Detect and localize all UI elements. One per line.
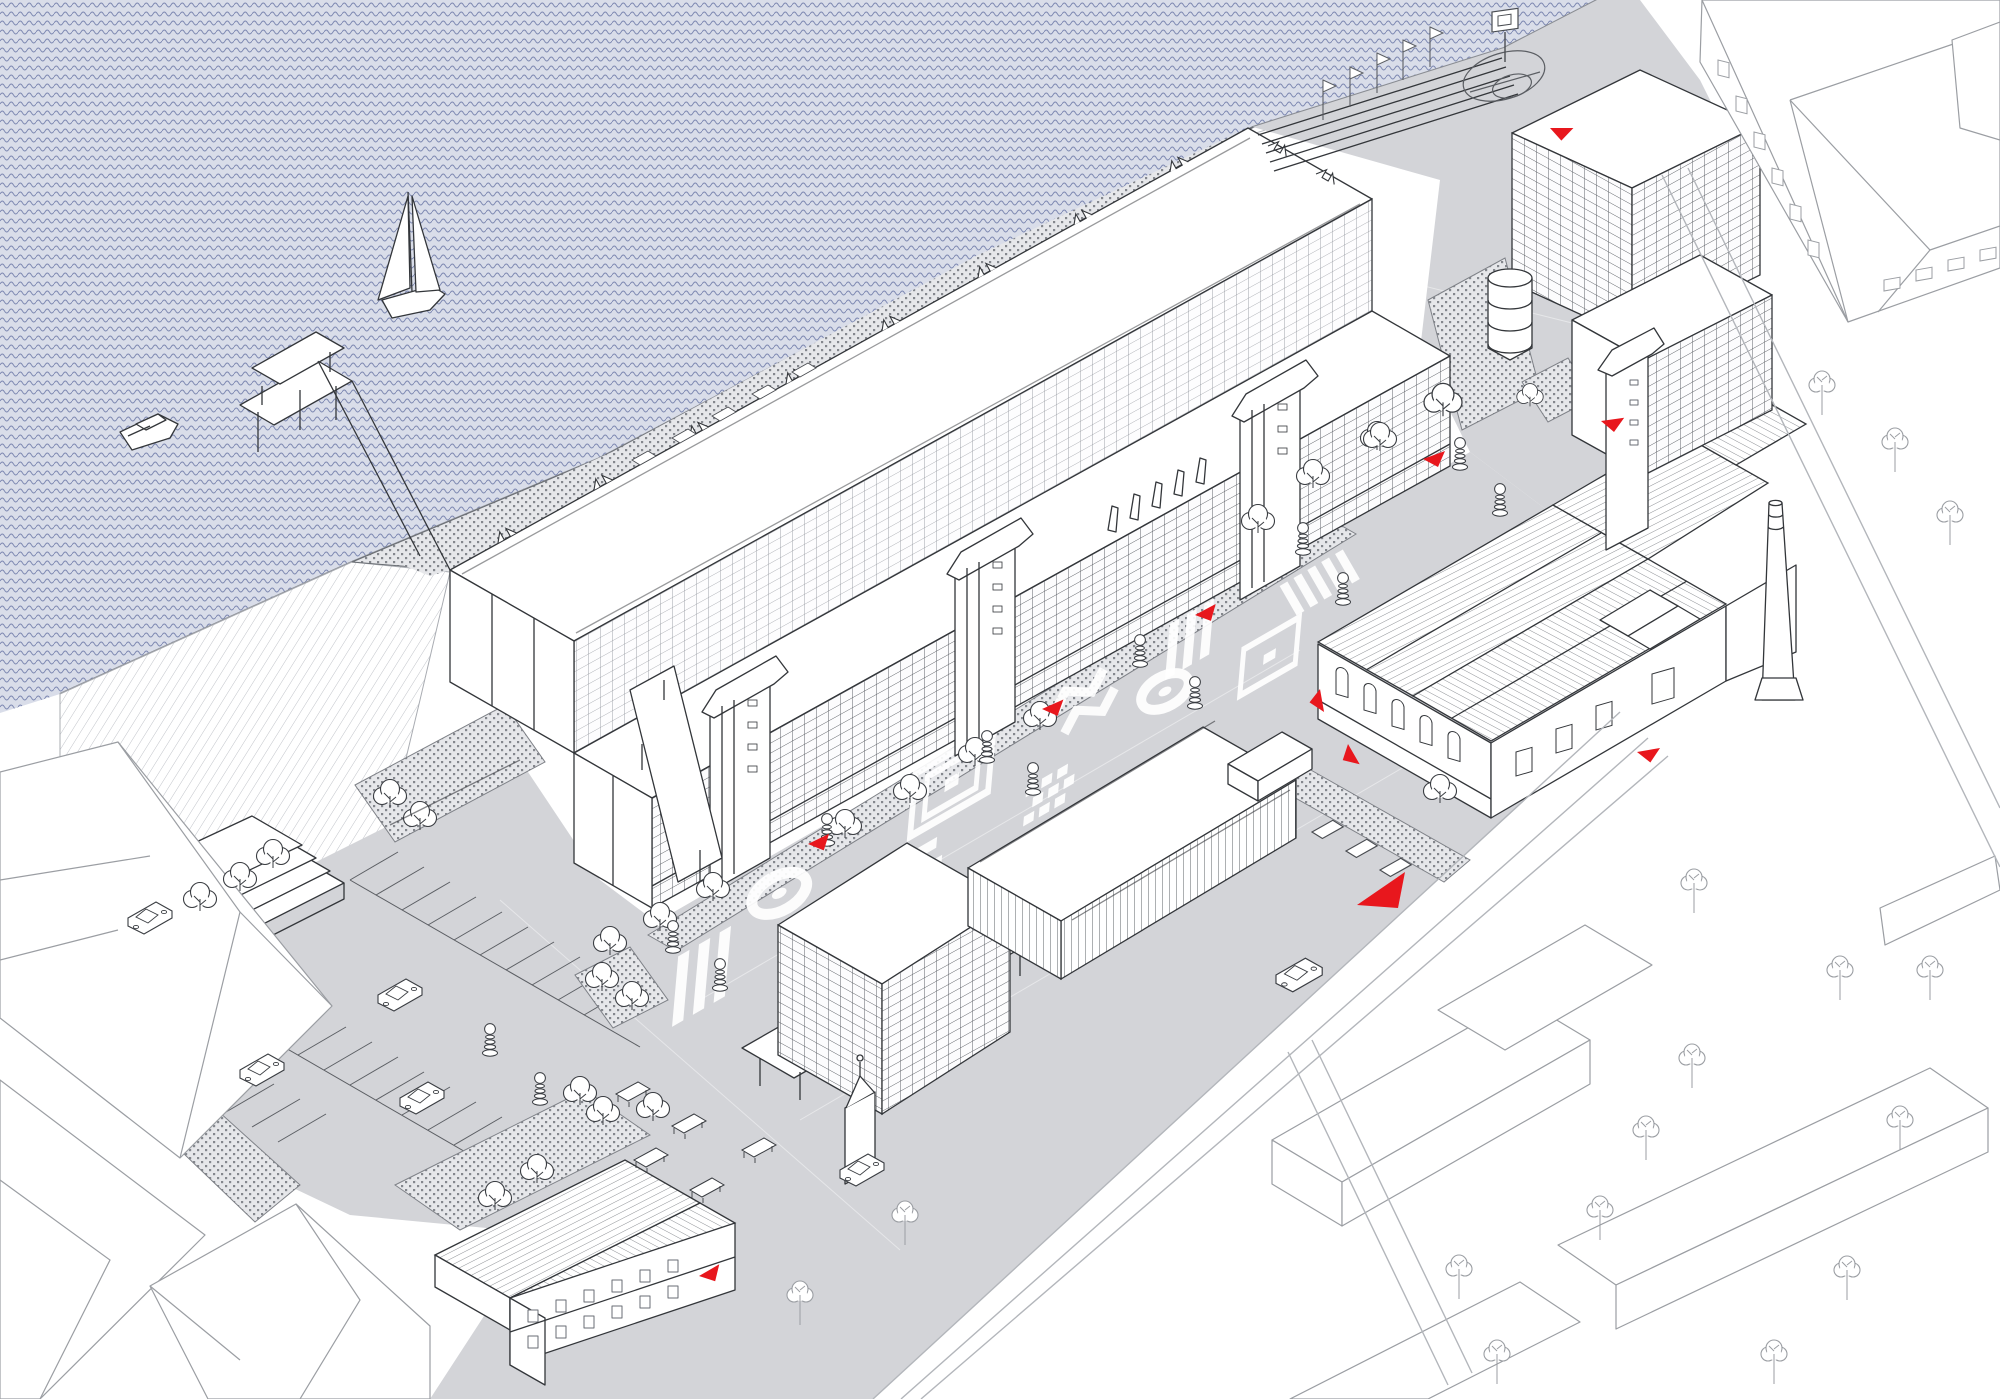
stacked-tank [1488, 269, 1532, 360]
axonometric-masterplan-canvas: { "meta": { "title": "Axonometric master… [0, 0, 2000, 1399]
site-drawing: Axonometric masterplan drawing of a wate… [0, 0, 2000, 1399]
